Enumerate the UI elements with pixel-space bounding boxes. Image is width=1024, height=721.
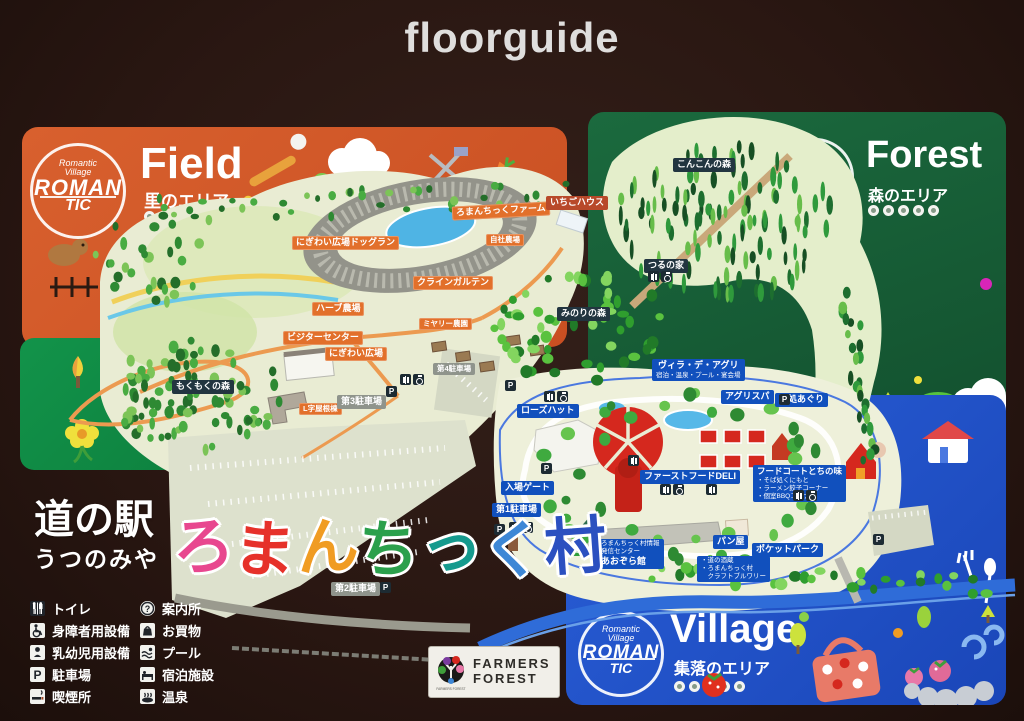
flower-icon xyxy=(114,392,122,400)
romantic-village-logo: Romantic Village ROMAN TIC xyxy=(776,138,854,216)
access-road xyxy=(175,598,470,628)
badge-icon xyxy=(689,681,700,692)
field-title: Field xyxy=(140,139,243,189)
shopping-bag-icon xyxy=(140,623,155,638)
wheelchair-icon xyxy=(557,391,568,402)
tree-icon xyxy=(72,356,83,388)
site-title-city: うつのみや xyxy=(34,540,159,574)
badge-icon xyxy=(883,205,894,216)
farmers-forest-tree-icon: FARMERS FOREST xyxy=(429,650,473,694)
map-label-konkon-forest: こんこんの森 xyxy=(673,158,735,172)
legend-label: お買物 xyxy=(162,621,201,640)
map-label-fastfood-deli: ファーストフードDELI xyxy=(640,470,740,484)
site-title-char: っ xyxy=(417,494,485,588)
flower-icon xyxy=(893,628,903,638)
tree-icon xyxy=(386,177,402,198)
panel-field-green xyxy=(20,338,332,470)
flower-icon xyxy=(167,456,193,470)
toilet-icon xyxy=(706,484,717,495)
brewery-line: クラフトブルワリー xyxy=(701,573,766,581)
basket-icon xyxy=(810,636,882,703)
flower-icon xyxy=(226,446,258,470)
legend-label: 身障者用設備 xyxy=(52,621,130,640)
legend-label: 温泉 xyxy=(162,687,188,706)
legend-label: 喫煙所 xyxy=(52,687,91,706)
map-label-jisha-farm: 自社農場 xyxy=(486,234,524,246)
badge-icon xyxy=(868,205,879,216)
logo-word1: ROMAN xyxy=(33,177,123,199)
brewery-line: ・道の酒蔵 xyxy=(701,557,766,565)
map-label-minori-forest: みのりの森 xyxy=(557,307,610,321)
field-badge-icons xyxy=(144,211,230,222)
badge-icon xyxy=(704,681,715,692)
tree-icon xyxy=(313,173,331,197)
parking-icon: P xyxy=(541,463,552,474)
wheelchair-icon xyxy=(673,484,684,495)
village-title: Village xyxy=(670,607,798,652)
flower-icon xyxy=(65,419,99,462)
green-panel-decorations xyxy=(20,338,332,470)
site-title-colored: ろまんちっく村 xyxy=(172,496,606,586)
toilet-icon xyxy=(660,484,671,495)
flower-icon xyxy=(980,278,992,290)
toilet-icon xyxy=(400,374,411,385)
map-label-mokumoku-forest: もくもくの森 xyxy=(172,380,234,394)
map-label-klein-garten: クラインガルテン xyxy=(413,276,493,290)
field-subtitle: 里のエリア xyxy=(144,187,229,212)
floorguide-sign: floorguide Romantic Village ROMAN TIC Fi… xyxy=(0,0,1024,721)
info-icon: ? xyxy=(140,601,155,616)
map-label-craft-brewery: ・道の酒蔵 ・ろまんちっく村 クラフトブルワリー xyxy=(697,556,770,582)
parking4-area xyxy=(434,348,500,417)
village-badge-icons xyxy=(674,681,745,692)
svg-text:?: ? xyxy=(145,604,151,614)
legend-right-column: ? 案内所 お買物 プール 宿泊施設 温泉 xyxy=(140,597,214,707)
strawberry-icon xyxy=(905,668,923,686)
villa-subtitle: 宿泊・温泉・プール・宴会場 xyxy=(656,372,741,380)
house-icon xyxy=(922,421,974,463)
logo-word2: TIC xyxy=(33,199,123,213)
badge-icon xyxy=(159,211,170,222)
legend-label: 案内所 xyxy=(162,599,201,618)
fence-icon xyxy=(50,277,98,297)
carrot-icon xyxy=(483,154,517,193)
smoking-icon xyxy=(30,689,45,704)
site-title-char: 村 xyxy=(541,494,609,588)
tree-icon xyxy=(917,606,931,628)
legend-item: お買物 xyxy=(140,619,214,641)
site-title-char: ち xyxy=(355,497,423,591)
map-label-herb-farm: ハーブ農場 xyxy=(312,302,364,316)
map-label-parking4: 第4駐車場 xyxy=(433,363,475,375)
legend-item: 喫煙所 xyxy=(30,685,130,707)
cloud-icon xyxy=(904,681,994,705)
badge-icon xyxy=(928,205,939,216)
flower-icon xyxy=(914,376,922,384)
logo-word2: TIC xyxy=(581,662,661,675)
map-label-villa-de-agri: ヴィラ・デ・アグリ 宿泊・温泉・プール・宴会場 xyxy=(652,359,745,381)
badge-icon xyxy=(174,211,185,222)
page-title: floorguide xyxy=(404,14,619,62)
legend-item: プール xyxy=(140,641,214,663)
legend-item: 乳幼児用設備 xyxy=(30,641,130,663)
site-title-char: ん xyxy=(293,494,361,588)
site-title-char: ま xyxy=(231,497,299,591)
onsen-icon xyxy=(140,689,155,704)
map-label-miyary-farm: ミヤリー農園 xyxy=(419,318,472,330)
site-title-char: ろ xyxy=(169,494,237,588)
legend-item: 温泉 xyxy=(140,685,214,707)
toilet-icon xyxy=(648,271,659,282)
map-label-agri-spa: アグリスパ xyxy=(721,390,774,404)
parking-icon: P xyxy=(30,667,45,682)
tree-icon xyxy=(131,360,145,386)
foodcourt-title: フードコートとちの味 xyxy=(757,466,842,477)
badge-icon xyxy=(734,681,745,692)
map-label-parking3: 第3駐車場 xyxy=(337,395,386,409)
parking-icon: P xyxy=(505,380,516,391)
toilet-icon xyxy=(30,601,45,616)
badge-icon xyxy=(189,211,200,222)
legend-item: 身障者用設備 xyxy=(30,619,130,641)
cutlery-icon xyxy=(958,550,996,603)
flower-icon xyxy=(799,612,809,622)
tools-icon xyxy=(430,147,468,181)
romantic-village-logo: Romantic Village ROMAN TIC xyxy=(578,611,664,697)
aozora-title: あおぞら館 xyxy=(601,556,660,568)
swirl-cloud-icon xyxy=(964,627,1002,657)
farmers-line1: FARMERS xyxy=(473,657,551,672)
forest-badge-icons xyxy=(868,205,939,216)
badge-icon xyxy=(898,205,909,216)
foodcourt-item: ・そば処くにもと xyxy=(757,477,842,485)
toilet-icon xyxy=(544,391,555,402)
legend-item: 宿泊施設 xyxy=(140,663,214,685)
map-label-visitor-center: ビジターセンター xyxy=(283,331,363,345)
baby-icon xyxy=(30,645,45,660)
site-title: 道の駅 うつのみや ろまんちっく村 xyxy=(34,500,159,574)
site-title-prefix: 道の駅 xyxy=(34,500,159,540)
legend-label: プール xyxy=(162,643,201,662)
map-label-rose-hut: ローズハット xyxy=(517,404,579,418)
pool-icon xyxy=(140,645,155,660)
map-label-dogrun: にぎわい広場ドッグラン xyxy=(292,236,399,250)
wheelchair-icon xyxy=(30,623,45,638)
parking-icon: P xyxy=(386,386,397,397)
dog-icon xyxy=(48,239,88,266)
badge-icon xyxy=(719,681,730,692)
tree-icon xyxy=(981,605,995,623)
map-label-ichigo-house: いちごハウス xyxy=(546,196,608,210)
farmers-line2: FOREST xyxy=(473,672,551,687)
parking-icon: P xyxy=(873,534,884,545)
legend-left-column: トイレ 身障者用設備 乳幼児用設備 P 駐車場 喫煙所 xyxy=(30,597,130,707)
map-label-nigiwai-plaza: にぎわい広場 xyxy=(325,347,387,361)
site-title-char: く xyxy=(479,497,547,591)
map-label-bakery: パン屋 xyxy=(713,535,748,549)
toilet-icon xyxy=(628,455,639,466)
lodging-icon xyxy=(140,667,155,682)
aozora-line: ろまんちっく村情報 xyxy=(601,540,660,548)
flower-icon xyxy=(170,420,186,436)
map-label-pocket-park: ポケットパーク xyxy=(752,543,823,557)
svg-text:FARMERS FOREST: FARMERS FOREST xyxy=(436,687,465,691)
toilet-icon xyxy=(793,490,804,501)
village-subtitle: 集落のエリア xyxy=(674,655,770,679)
badge-icon xyxy=(674,681,685,692)
legend-label: 宿泊施設 xyxy=(162,665,214,684)
strawberry-icon xyxy=(929,660,951,682)
map-label-entrance-gate: 入場ゲート xyxy=(501,481,554,495)
map-label-l-roof: L字屋根棟 xyxy=(299,403,342,415)
wheelchair-icon xyxy=(661,271,672,282)
badge-icon xyxy=(913,205,924,216)
svg-text:P: P xyxy=(33,668,41,682)
badge-icon xyxy=(144,211,155,222)
badge-icon xyxy=(219,211,230,222)
parking-icon: P xyxy=(779,394,790,405)
logo-word1: ROMAN xyxy=(581,643,661,662)
badge-icon xyxy=(204,211,215,222)
romantic-village-logo: Romantic Village ROMAN TIC xyxy=(30,143,126,239)
legend-item: P 駐車場 xyxy=(30,663,130,685)
legend-label: 乳幼児用設備 xyxy=(52,643,130,662)
farmers-forest-logo: FARMERS FOREST FARMERS FOREST xyxy=(428,646,560,698)
legend-item: ? 案内所 xyxy=(140,597,214,619)
wheelchair-icon xyxy=(806,490,817,501)
forest-subtitle: 森のエリア xyxy=(868,182,948,206)
logo-word2: TIC xyxy=(779,186,851,198)
forest-title: Forest xyxy=(866,134,982,177)
legend-label: 駐車場 xyxy=(52,665,91,684)
legend-label: トイレ xyxy=(52,599,91,618)
villa-title: ヴィラ・デ・アグリ xyxy=(656,360,741,372)
cloud-icon xyxy=(328,138,390,176)
wheelchair-icon xyxy=(413,374,424,385)
legend-item: トイレ xyxy=(30,597,130,619)
